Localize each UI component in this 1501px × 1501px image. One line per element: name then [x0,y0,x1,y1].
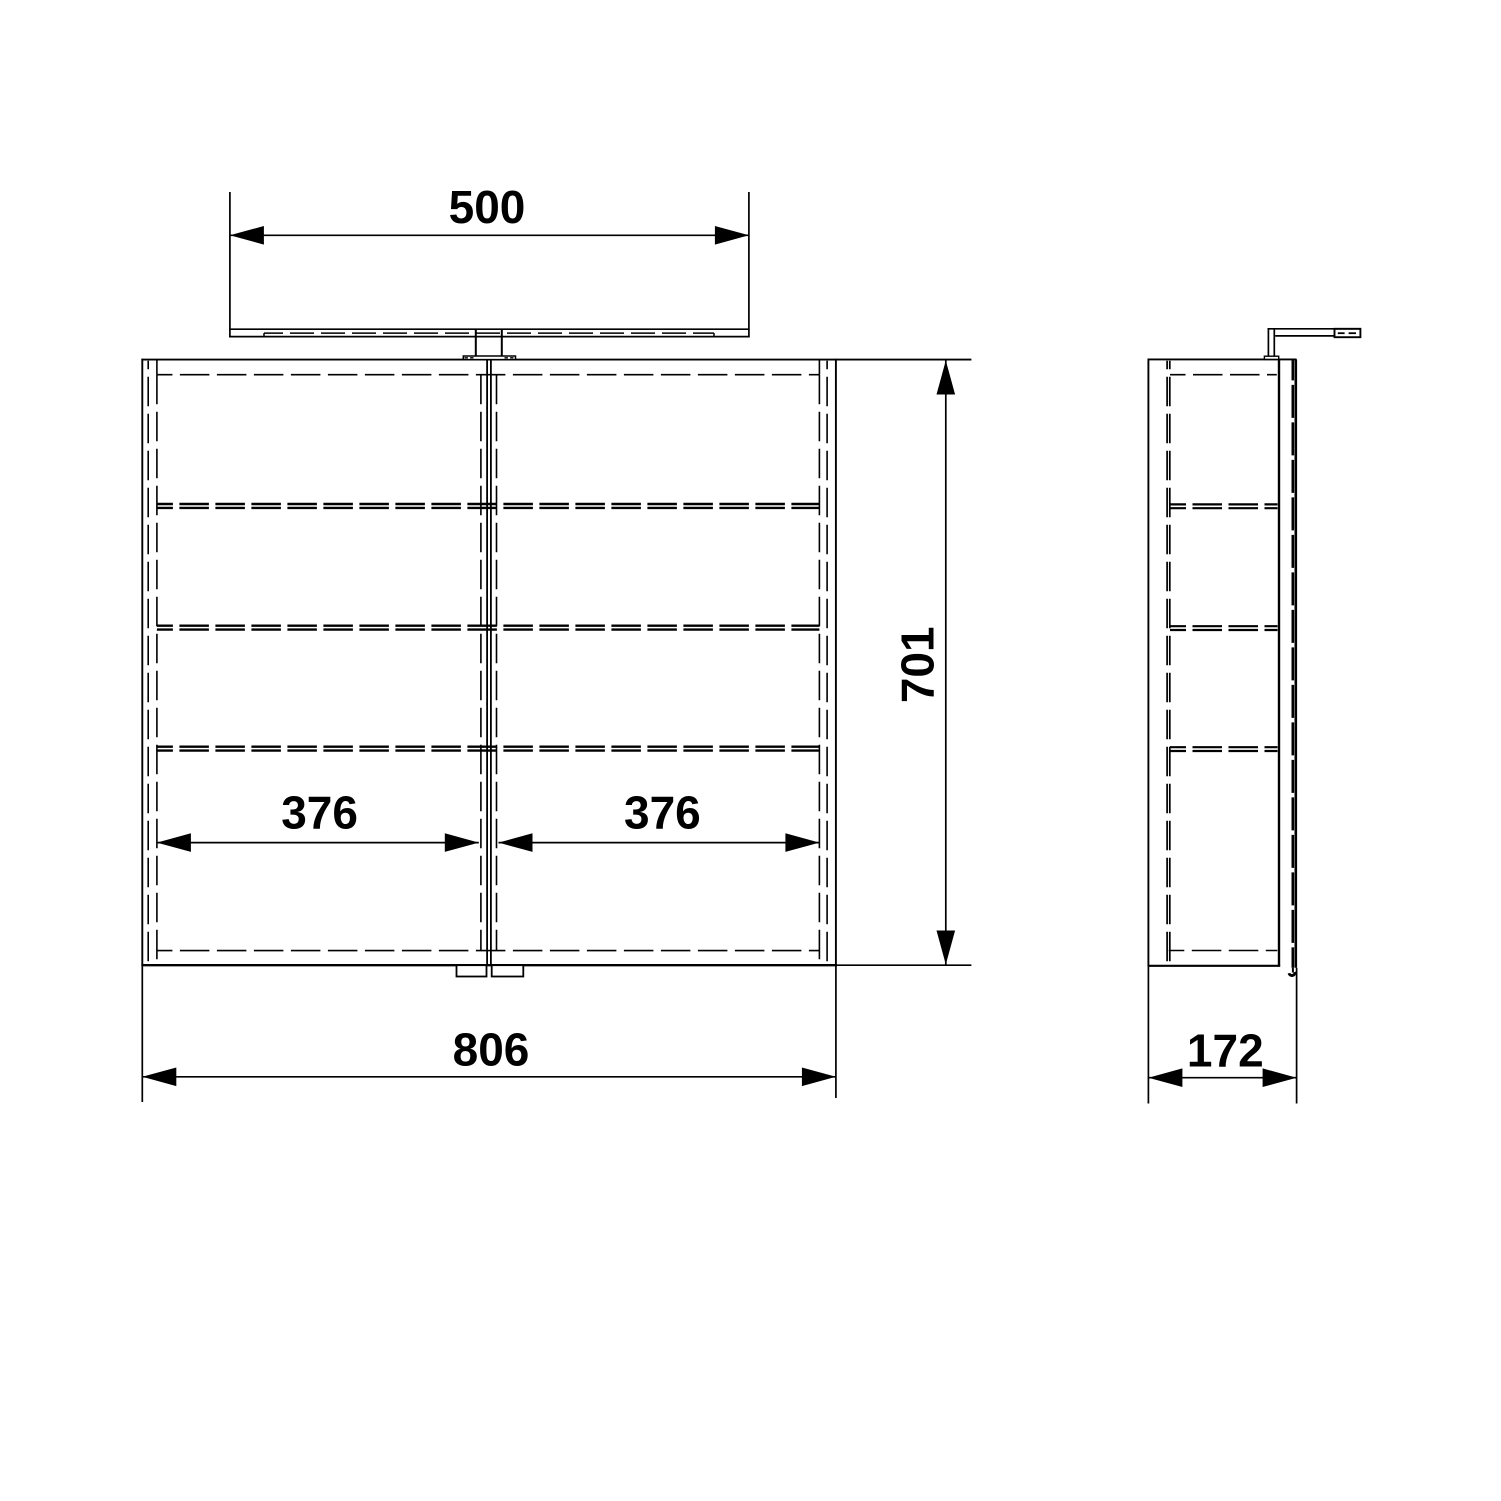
svg-text:376: 376 [624,786,701,838]
svg-text:376: 376 [281,786,358,838]
svg-text:172: 172 [1187,1024,1264,1076]
svg-text:500: 500 [449,181,526,233]
svg-text:701: 701 [892,626,944,703]
svg-text:806: 806 [453,1024,530,1076]
